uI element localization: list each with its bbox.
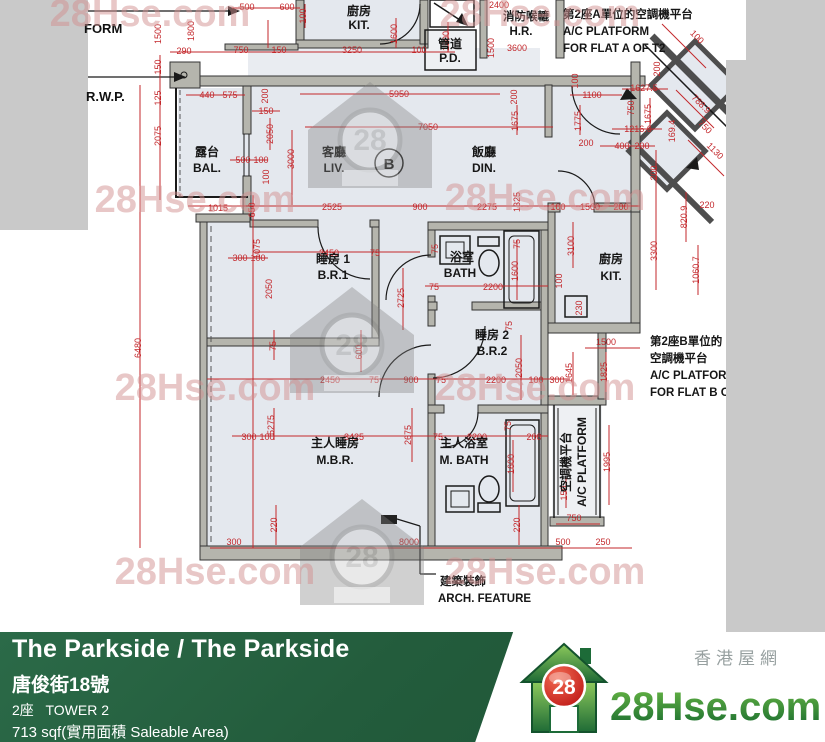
watermark-text: 28Hse.com [95,179,296,221]
wall [545,85,552,137]
dimension-label: 600 [279,2,294,12]
room-label: 廚房 [599,251,623,266]
logo-house-door-icon [550,706,578,732]
room-label: R.W.P. [86,89,125,104]
dimension-label: 100 [298,8,308,23]
dimension-label: 750 [566,513,581,523]
watermark-text: 28Hse.com [115,551,316,593]
floor-plan: 5006001001500180029075015032501001500160… [0,0,825,632]
dimension-label: 220 [269,517,279,532]
room-label: FOR FLAT B OF [650,387,737,399]
property-tower: 2座 TOWER 2 [12,700,109,720]
room-label: FOR FLAT A OF T2 [563,43,665,55]
dimension-label: 2050 [264,279,274,299]
svg-text:28: 28 [335,329,368,362]
dimension-label: 575 [222,90,237,100]
wall [428,222,548,230]
dimension-label: 3100 [566,236,576,256]
brand-logo-graphic: 28 28Hse.com 香港屋網 [496,634,822,740]
dimension-label: 100 [259,432,274,442]
room-label: 主人浴室 [440,435,488,450]
dimension-label: 169.4 [667,120,677,143]
dimension-label: 220 [512,517,522,532]
wall [428,302,437,310]
room-label: BAL. [193,161,221,175]
dimension-label: 3600 [507,43,527,53]
dimension-label: 100 [250,253,265,263]
dimension-label: 300 [241,432,256,442]
dimension-label: 150 [271,45,286,55]
watermark-text: 28Hse.com [445,551,646,593]
dimension-label: 6480 [133,338,143,358]
dimension-label: 1500 [596,337,616,347]
dimension-label: 3250 [342,45,362,55]
room-label: DIN. [472,161,496,175]
dimension-label: 5950 [389,89,409,99]
brand-name: 28Hse.com [610,685,821,729]
dimension-label: 1675 [510,111,520,131]
dimension-label: 220 [699,200,714,210]
dimension-label: 500 [555,537,570,547]
dimension-label: 1500 [486,38,496,58]
room-label: 浴室 [450,249,474,264]
dimension-label: 150 [153,59,163,74]
dimension-label: 250 [595,537,610,547]
room-label: B.R.1 [318,268,349,282]
room-label: 空調機平台 [650,351,708,365]
info-bar: The Parkside / The Parkside 唐俊街18號 2座 TO… [0,632,825,742]
room-label: 飯廳 [471,144,496,159]
wall [428,310,435,326]
dimension-label: 125 [153,90,163,105]
room-label: A/C PLATFORM [650,370,736,382]
watermark-text: 28Hse.com [445,177,646,219]
dimension-label: 2525 [322,202,342,212]
dimension-label: 300 [232,253,247,263]
dimension-label: 900 [412,202,427,212]
dimension-label: 200 [509,89,519,104]
wall [541,413,548,546]
dimension-label: 820.9 [679,206,689,229]
dimension-label: 750 [626,100,636,115]
dimension-label: 750 [233,45,248,55]
dimension-label: 1600 [506,454,516,474]
dimension-label: 100 [554,273,564,288]
dimension-label: 2725 [396,288,406,308]
dimension-label: 200 [652,61,662,76]
dimension-label: 1995 [602,452,612,472]
wall [548,323,640,333]
dimension-label: 75 [512,239,522,249]
dimension-label: 100 [411,45,426,55]
dimension-label: 75 [503,421,513,431]
dimension-label: 500 [235,155,250,165]
wall [420,0,428,44]
outside-area [726,0,825,632]
dimension-label: 100 [253,155,268,165]
room-kitchen [548,210,640,325]
wall [370,220,379,227]
room-label: 管道 [438,36,462,51]
property-title: The Parkside / The Parkside [12,635,350,664]
room-label: 睡房 1 [316,251,350,266]
room-label: 露台 [195,144,219,159]
svg-text:28: 28 [353,124,386,157]
dimension-label: 2675 [403,425,413,445]
dimension-label: 1060.7 [691,256,701,284]
watermark-text: 28Hse.com [435,367,636,409]
dimension-label: 400 [614,141,629,151]
room-label: P.D. [439,51,461,65]
dimension-label: 1675 [643,104,653,124]
dimension-label: 3000 [286,149,296,169]
watermark-text: 28Hse.com [50,0,251,35]
property-address: 唐俊街18號 [12,670,109,697]
dimension-label: 1216.6 [624,124,652,134]
dimension-label: 1600 [389,24,399,44]
dimension-label: 150 [258,106,273,116]
dimension-label: 2075 [153,126,163,146]
wall [243,86,251,134]
watermark-text: 28Hse.com [115,367,316,409]
room-label: A/C PLATFORM [575,417,589,507]
wall [631,212,640,333]
dimension-label: 1100 [582,90,601,100]
room-label: 第2座B單位的 [650,334,722,348]
room-label: 睡房 2 [475,327,509,342]
dimension-label: 1627.5 [630,83,658,93]
room-label: B.R.2 [477,344,508,358]
dimension-label: 1775 [573,111,583,131]
logo-28-badge: 28 [552,676,576,699]
room-label: KIT. [348,18,369,32]
dimension-label: 440 [199,90,214,100]
dimension-label: 75 [268,341,278,351]
brand-tagline: 香港屋網 [694,649,782,668]
dimension-label: 100 [570,73,580,88]
property-area: 713 sqf(實用面積 Saleable Area) [12,721,229,742]
room-label: M.B.R. [316,453,353,467]
dimension-label: 1600 [510,261,520,281]
room-label: 主人睡房 [311,435,359,450]
room-label: 廚房 [347,3,371,18]
room-label: BATH [444,266,476,280]
room-label: M. BATH [439,453,488,467]
room-label: KIT. [600,269,621,283]
dimension-label: 3300 [649,241,659,261]
watermark-text: 28Hse.com [440,0,641,35]
screenshot-root: 5006001001500180029075015032501001500160… [0,0,825,742]
dimension-label: 230 [574,300,584,315]
wall [250,220,318,227]
svg-text:28: 28 [345,541,378,574]
room-label: ARCH. FEATURE [438,593,531,605]
dimension-label: 75 [430,244,440,254]
brand-logo[interactable]: 28 28Hse.com 香港屋網 [496,634,822,740]
dimension-label: 75 [370,248,380,258]
dimension-label: 200 [260,88,270,103]
dimension-label: 200 [649,165,659,180]
wall [472,302,548,310]
room-label: 空調機平台 [558,432,573,492]
dimension-label: 2050 [265,124,275,144]
dimension-label: 200 [578,138,593,148]
dimension-label: 2200 [483,282,503,292]
dimension-label: 290 [176,46,191,56]
dimension-label: 200 [634,141,649,151]
dimension-label: 200 [526,432,541,442]
dimension-label: 300 [226,537,241,547]
wall [548,212,555,330]
dimension-label: 75 [429,282,439,292]
